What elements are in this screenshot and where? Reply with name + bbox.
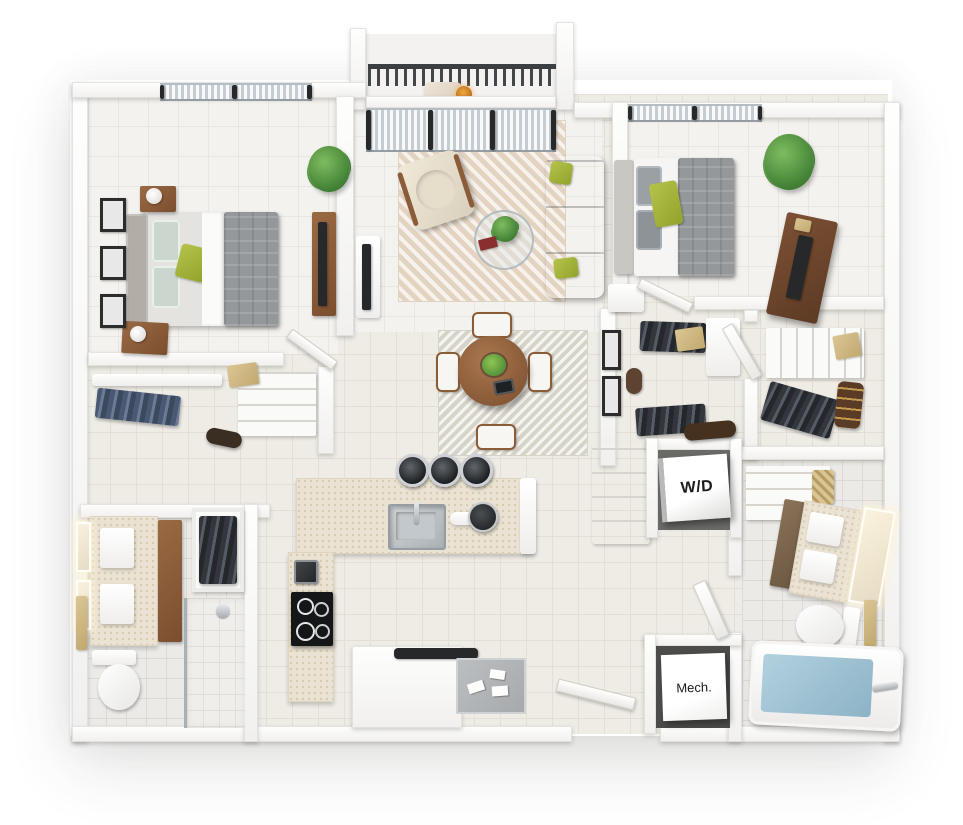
bath1-closet-clothes <box>199 516 237 584</box>
bed1-duvet <box>224 212 278 326</box>
slider-frame-3 <box>490 110 495 150</box>
range-burner-4 <box>315 624 330 639</box>
bath1-shower-head <box>216 604 230 618</box>
bathtub-water <box>761 654 874 718</box>
mechanical-panel: Mech. <box>661 653 727 721</box>
bath2-vanity-group <box>768 491 899 615</box>
dining-chair-left <box>436 352 460 392</box>
bedroom1-window-frame-mid <box>232 85 237 99</box>
bedroom1-tv <box>318 222 327 306</box>
bedroom2-window-frame-right <box>758 106 762 120</box>
kitchen-range <box>291 592 333 646</box>
laundry-closet-wall-right <box>730 438 742 538</box>
range-burner-1 <box>297 598 314 615</box>
bedroom2-dresser-decor <box>794 218 812 233</box>
bath1-vanity-cabinet <box>158 520 182 642</box>
kitchen-island-waterfall-side <box>520 478 536 554</box>
kitchen-sink <box>388 504 446 550</box>
bar-stool-2 <box>428 454 461 487</box>
bath1-sink-bottom <box>100 584 134 624</box>
closet1-shelf <box>92 374 222 386</box>
fruit-bowl <box>482 354 506 376</box>
bedroom1-window-frame-left <box>160 85 164 99</box>
mech-closet-wall-left <box>644 634 656 734</box>
outer-wall-bottom-left <box>72 726 572 742</box>
balcony-railing <box>368 64 556 86</box>
bed1-nightstand-bottom <box>121 321 169 355</box>
sofa-pillow-bottom <box>553 257 579 280</box>
coffee-maker <box>294 560 318 584</box>
mechanical-label: Mech. <box>676 679 712 695</box>
mail-envelope-2 <box>489 669 505 680</box>
wall-bedroom1-living <box>336 96 354 336</box>
floor-plan-render: { "scene": { "labels": { "washer_dryer":… <box>0 0 963 825</box>
bedroom2-window <box>628 104 762 122</box>
bed1-white-throw <box>202 212 224 326</box>
bedroom1-plant <box>308 146 350 192</box>
closet1-storage-box <box>227 362 260 388</box>
closet-a-storage-box <box>675 326 706 352</box>
wall-closet-divider-top <box>744 310 758 322</box>
bath1-sink-top <box>100 528 134 568</box>
bath1-towel-bar <box>76 596 87 650</box>
wall-closet1-right <box>318 366 334 454</box>
dining-chair-bottom <box>476 424 516 450</box>
balcony-right-wall <box>556 22 574 110</box>
washer-dryer-unit: W/D <box>658 454 731 523</box>
closet-a-ottoman <box>626 368 642 394</box>
kitchen-faucet <box>414 502 419 524</box>
hall-linen-cabinet <box>592 442 650 544</box>
bathtub-faucet <box>872 681 899 692</box>
range-burner-3 <box>296 622 315 641</box>
mail-envelope-3 <box>492 685 509 696</box>
slider-frame-4 <box>551 110 556 150</box>
entry-doormat <box>456 658 526 714</box>
slider-frame-2 <box>428 110 433 150</box>
bath1-shower <box>184 598 245 728</box>
bed1-lamp-top <box>146 188 162 204</box>
balcony-sliding-door <box>366 108 556 152</box>
bedroom2-plant <box>764 134 814 190</box>
bed1-lamp-bottom <box>130 326 146 342</box>
bedroom2-tv <box>786 235 814 301</box>
bath2-sink-left <box>806 512 845 547</box>
bar-stool-3 <box>460 454 493 487</box>
outer-wall-right <box>884 102 900 742</box>
bath2-towel-bar <box>864 600 876 646</box>
bedroom2-window-frame-mid <box>692 106 697 120</box>
bedroom1-windows <box>160 83 312 101</box>
bed2-duvet <box>678 158 734 276</box>
bedroom1-wall-frame-1 <box>100 198 126 232</box>
bedroom1-window-frame-right <box>307 85 312 99</box>
dining-chair-right <box>528 352 552 392</box>
armchair-cushion <box>411 165 461 215</box>
bed1-pillow-top <box>152 220 180 262</box>
washer-dryer-label: W/D <box>680 478 714 498</box>
bathtub <box>748 640 904 732</box>
bar-stool-1 <box>396 454 429 487</box>
living-tv <box>362 244 371 310</box>
bedroom2-window-frame-left <box>628 106 632 120</box>
hall-wall-frame-1 <box>602 330 621 370</box>
sofa-pillow-top <box>549 161 574 186</box>
hall-wall-frame-2 <box>602 376 621 416</box>
slider-header-wall <box>366 96 556 108</box>
bath1-toilet-bowl <box>98 664 140 710</box>
bath2-sink-right <box>799 549 838 584</box>
bath1-mirror-top <box>76 522 91 572</box>
bedroom1-wall-frame-3 <box>100 294 126 328</box>
dining-chair-top <box>472 312 512 338</box>
slider-frame-1 <box>366 110 371 150</box>
bedroom1-wall-frame-2 <box>100 246 126 280</box>
bath1-toilet-tank <box>92 650 136 665</box>
mech-closet-wall-top <box>644 634 742 646</box>
kitchen-dark-bowl <box>468 502 498 532</box>
bed1-headboard <box>126 214 148 326</box>
wall-bathroom2-left-lower <box>728 632 742 742</box>
wall-bathroom1-right <box>244 504 258 742</box>
bed2-headboard <box>614 160 634 274</box>
closet-b-bench <box>834 381 865 429</box>
mail-envelope-1 <box>467 680 485 694</box>
range-burner-2 <box>314 602 329 617</box>
laundry-closet-wall-left <box>646 438 658 538</box>
closet-b-storage-box <box>832 332 862 360</box>
